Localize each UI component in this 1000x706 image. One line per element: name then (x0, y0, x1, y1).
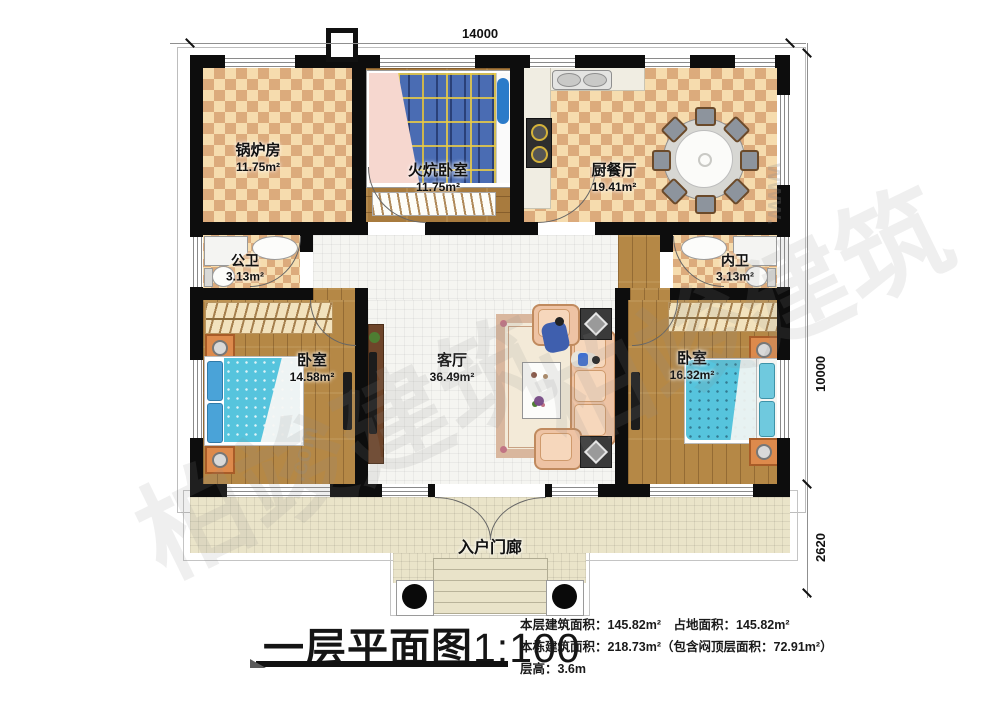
room-name: 公卫 (226, 252, 264, 269)
dining-chair-7 (695, 195, 716, 214)
porch-column-right (552, 584, 577, 609)
area-info-line-2: 本栋建筑面积：218.73m²（包含闷顶层面积：72.91m²） (520, 637, 833, 659)
room-label-bath-left: 公卫 3.13m² (226, 252, 264, 283)
window-kitchen-right (777, 95, 790, 185)
window-kitchen-top-3 (735, 55, 775, 68)
nightstand-left-bottom (205, 446, 235, 474)
tv-living (369, 352, 377, 434)
nightstand-knob (212, 340, 228, 356)
nightstand-right-bottom (749, 438, 779, 466)
toilet-right-tank (767, 268, 776, 287)
nightstand-knob (756, 444, 772, 460)
person-sitting-head (555, 317, 564, 326)
room-area: 36.49m² (430, 370, 475, 384)
entrance-opening (435, 484, 545, 497)
bed-right-pillow-bottom (759, 401, 775, 437)
dimension-right-lower-label: 2620 (813, 533, 828, 562)
kitchen-sink-basin-left (557, 73, 581, 87)
room-area: 16.32m² (670, 368, 715, 382)
nightstand-knob (756, 342, 772, 358)
area-info-line-1: 本层建筑面积：145.82m² 占地面积：145.82m² (520, 615, 833, 637)
window-boiler-top (225, 55, 295, 68)
side-table-top (580, 308, 612, 340)
window-bath-left (190, 237, 203, 287)
side-table-inlay (584, 312, 608, 336)
room-label-bedroom-right: 卧室 16.32m² (670, 350, 715, 382)
dimension-line-top (170, 43, 806, 44)
rug-rose-1 (500, 320, 507, 327)
dining-table-center (698, 153, 712, 167)
room-label-kitchen: 厨餐厅 19.41m² (591, 162, 636, 194)
window-kang-top (380, 55, 475, 68)
wall-kang-kitchen (510, 68, 524, 222)
window-bedroom-left-side (190, 360, 203, 438)
window-living-bottom-right (552, 484, 598, 497)
nightstand-knob (212, 452, 228, 468)
door-opening-bath-right (660, 252, 673, 288)
room-label-kang: 火炕卧室 11.75m² (408, 162, 468, 194)
bed-left-pillow-bottom (207, 403, 223, 443)
kang-bed-pillow (497, 78, 509, 124)
room-area: 11.75m² (408, 180, 468, 194)
dining-chair-1 (740, 150, 759, 171)
dimension-top-label: 14000 (462, 26, 498, 41)
chimney (326, 28, 358, 62)
room-label-porch: 入户门廊 (458, 538, 522, 557)
room-name: 卧室 (670, 350, 715, 368)
window-living-bottom-left (382, 484, 428, 497)
floorplan-canvas: 14000 10000 2620 锅炉房 11.75m² 火炕卧室 11.75m… (0, 0, 1000, 706)
kitchen-sink-basin-right (583, 73, 607, 87)
plant-on-cabinet (369, 332, 380, 343)
stove-burner-top (531, 124, 548, 141)
room-area: 3.13m² (716, 269, 754, 283)
title-underline-arrow (250, 659, 266, 668)
person-lying-head (592, 356, 600, 364)
room-name: 厨餐厅 (591, 162, 636, 180)
room-area: 19.41m² (591, 180, 636, 194)
coffee-table (522, 362, 561, 419)
bed-left-pillow-top (207, 361, 223, 401)
wall-bedroom-left-right (355, 300, 368, 484)
stove-burner-bottom (531, 146, 548, 163)
dining-chair-5 (652, 150, 671, 171)
window-bedroom-right-bottom (650, 484, 753, 497)
wall-bedroom-right-left (615, 300, 628, 484)
side-table-inlay (584, 440, 608, 464)
rug-rose-3 (500, 446, 507, 453)
dimension-line-right (807, 43, 808, 598)
room-label-boiler: 锅炉房 11.75m² (235, 142, 280, 174)
coffee-table-cup-1 (531, 372, 537, 378)
door-opening-kitchen (538, 222, 595, 235)
room-name: 内卫 (716, 252, 754, 269)
wall-boiler-kang (352, 68, 366, 222)
room-name: 入户门廊 (458, 538, 522, 557)
bed-right-pillow-top (759, 363, 775, 399)
wardrobe-right (668, 302, 778, 332)
area-info-block: 本层建筑面积：145.82m² 占地面积：145.82m² 本栋建筑面积：218… (520, 615, 833, 681)
person-lying-shorts (578, 353, 588, 366)
title-underline (256, 661, 508, 667)
entry-steps (433, 558, 548, 614)
coffee-table-flowers (534, 396, 544, 406)
door-opening-bedroom-left (313, 288, 355, 300)
area-info-line-3: 层高：3.6m (520, 659, 833, 681)
door-opening-bedroom-right (630, 288, 670, 300)
armchair-bottom-cushion (540, 433, 572, 461)
dimension-right-upper-label: 10000 (813, 356, 828, 392)
side-table-bottom (580, 436, 612, 468)
sofa-cushion-2 (574, 370, 606, 402)
coffee-table-cup-2 (543, 374, 548, 379)
room-name: 卧室 (290, 352, 335, 370)
room-area: 14.58m² (290, 370, 335, 384)
window-bedroom-right-side (777, 360, 790, 438)
window-kitchen-top-1 (530, 55, 575, 68)
room-label-living: 客厅 36.49m² (430, 352, 475, 384)
room-label-bedroom-left: 卧室 14.58m² (290, 352, 335, 384)
tv-bedroom-right (631, 372, 640, 430)
door-opening-kang (368, 222, 425, 235)
wall-top-rooms-bottom (190, 222, 790, 235)
room-name: 火炕卧室 (408, 162, 468, 180)
window-bedroom-left-bottom (227, 484, 330, 497)
door-opening-bath-left (300, 252, 313, 288)
window-bath-right (777, 237, 790, 287)
room-area: 11.75m² (235, 160, 280, 174)
tv-bedroom-left (343, 372, 352, 430)
porch-column-left (402, 584, 427, 609)
dining-chair-3 (695, 107, 716, 126)
room-area: 3.13m² (226, 269, 264, 283)
window-kitchen-top-2 (645, 55, 690, 68)
room-name: 客厅 (430, 352, 475, 370)
room-name: 锅炉房 (235, 142, 280, 160)
room-label-bath-right: 内卫 3.13m² (716, 252, 754, 283)
